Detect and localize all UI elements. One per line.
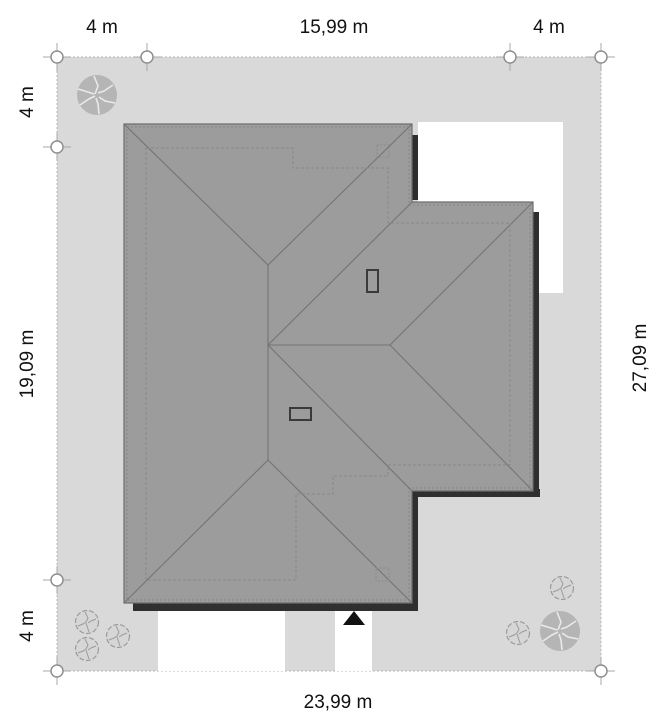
dim-label-top-left: 4 m (86, 17, 118, 38)
site-plan: 4 m 15,99 m 4 m 4 m 19,09 m 4 m 27,09 m … (0, 0, 659, 724)
chimney (290, 408, 311, 420)
driveway-strip (158, 603, 285, 671)
bush-icon (76, 638, 99, 661)
wall-edge (133, 603, 418, 611)
dim-label-bottom: 23,99 m (304, 692, 373, 713)
dim-label-left-top: 4 m (17, 86, 38, 118)
chimney (367, 270, 378, 292)
dim-label-left-bottom: 4 m (17, 610, 38, 642)
bush-icon (551, 577, 574, 600)
dim-label-top-right: 4 m (533, 17, 565, 38)
wall-edge (412, 491, 418, 611)
bush-icon (76, 611, 99, 634)
tree-icon (77, 75, 117, 115)
tree-icon (540, 611, 580, 651)
site-plan-svg: 4 m 15,99 m 4 m 4 m 19,09 m 4 m 27,09 m … (0, 0, 659, 724)
bush-icon (107, 625, 130, 648)
bush-icon (507, 622, 530, 645)
dim-label-left-middle: 19,09 m (17, 330, 38, 399)
wall-edge (533, 212, 539, 491)
dim-label-right: 27,09 m (630, 324, 651, 393)
dim-label-top-center: 15,99 m (300, 17, 369, 38)
wall-edge (412, 135, 418, 200)
